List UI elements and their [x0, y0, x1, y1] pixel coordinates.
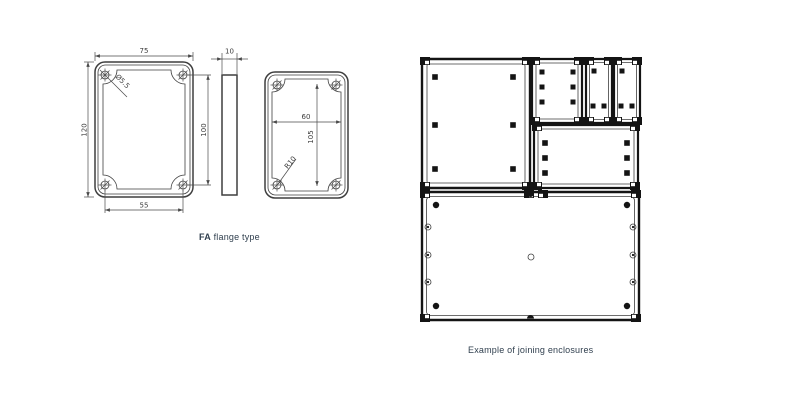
enclosure-bottom-large [420, 190, 641, 322]
svg-text:Ø5.5: Ø5.5 [114, 73, 131, 90]
dim-inner-height: 105 [307, 84, 317, 186]
flange-type-caption-rest: flange type [211, 232, 260, 242]
svg-text:60: 60 [302, 113, 311, 121]
svg-text:10: 10 [225, 48, 234, 56]
dim-hole-pitch-horizontal: 55 [105, 190, 183, 213]
enclosure-medium [530, 57, 584, 125]
svg-text:100: 100 [200, 123, 208, 136]
flange-type-caption-bold: FA [199, 232, 211, 242]
front-cavity-outline [103, 70, 185, 189]
dim-thickness: 10 [211, 48, 248, 75]
enclosure-narrow-1 [584, 57, 614, 125]
enclosure-narrow-2 [612, 57, 642, 125]
svg-text:120: 120 [81, 123, 89, 136]
enclosure-wide [532, 123, 640, 190]
side-view [222, 75, 237, 195]
svg-text:75: 75 [140, 47, 149, 55]
dim-outer-height: 120 [81, 62, 95, 197]
svg-text:105: 105 [307, 130, 315, 143]
enclosure-large-square [420, 57, 532, 190]
dim-corner-radius: R10 [278, 155, 298, 184]
joining-example-drawing [415, 45, 650, 330]
front-view [95, 62, 193, 197]
dim-hole-pitch-vertical: 100 [188, 75, 211, 185]
svg-text:55: 55 [140, 202, 149, 210]
svg-text:R10: R10 [283, 155, 298, 171]
dim-inner-width: 60 [272, 113, 341, 122]
flange-drawing: 75 120 100 55 Ø5.5 [80, 40, 390, 260]
joining-example-caption: Example of joining enclosures [468, 345, 593, 355]
page: 75 120 100 55 Ø5.5 [0, 0, 803, 414]
dim-outer-width: 75 [95, 47, 193, 61]
flange-type-caption: FA flange type [199, 232, 260, 242]
